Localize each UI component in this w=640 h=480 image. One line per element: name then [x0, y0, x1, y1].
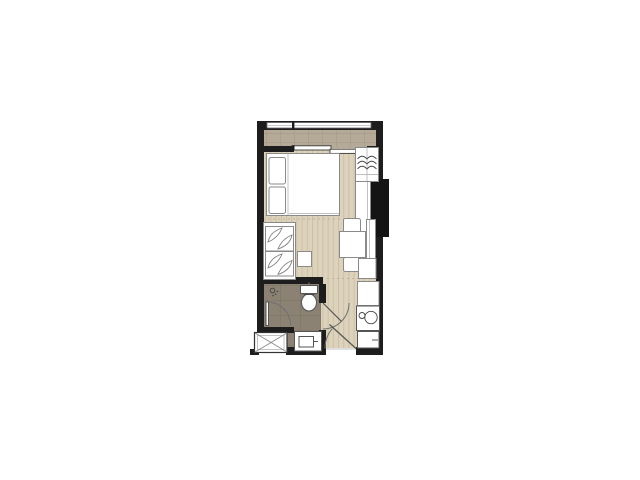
dining-furniture	[340, 219, 377, 279]
window-mullion	[292, 122, 294, 129]
shower-pivot-door	[266, 302, 269, 326]
flush-button-icon	[308, 282, 310, 284]
kitchen-fixtures	[357, 282, 380, 349]
shower-spray-dot	[277, 291, 279, 293]
dining-table	[340, 232, 366, 258]
balcony-floor	[264, 129, 376, 148]
dining-chair-bottom	[344, 258, 361, 272]
vanity-basin	[299, 337, 314, 348]
sliding-door-cap-left	[292, 145, 295, 150]
shower-spray-dot	[272, 295, 274, 297]
service-ledge	[255, 333, 288, 353]
floor-plan	[0, 0, 640, 480]
pillow	[269, 187, 286, 214]
base-cabinet	[359, 259, 377, 279]
wall-left	[257, 130, 264, 347]
shower-spray-dot	[275, 293, 277, 295]
balcony-divider-wall	[264, 146, 294, 152]
dining-chair-top	[344, 219, 361, 233]
bathroom-right-wall-upper	[319, 284, 326, 303]
toilet-tank	[301, 286, 318, 294]
sliding-door-panel-outer	[293, 146, 331, 150]
pillow	[269, 158, 286, 185]
floor-plan-canvas	[0, 0, 640, 480]
kitchen-counter	[358, 282, 380, 306]
side-table	[298, 252, 312, 267]
toilet-bowl	[302, 294, 317, 311]
tall-wall-cabinet	[367, 220, 376, 263]
